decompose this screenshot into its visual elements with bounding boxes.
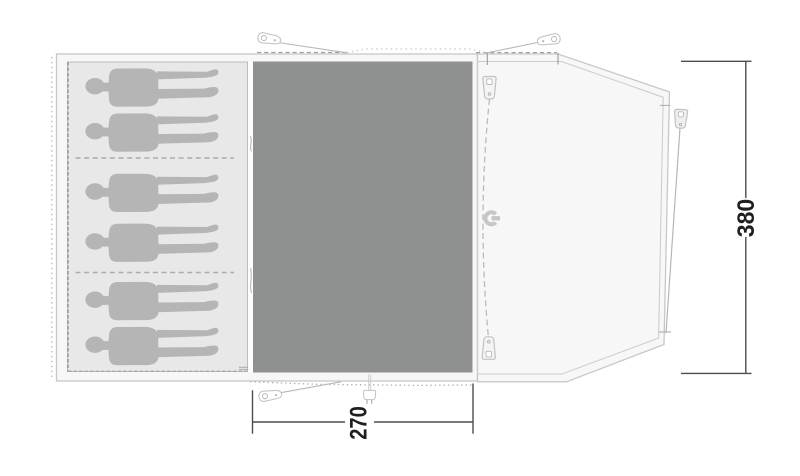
svg-text:270: 270 <box>346 406 373 440</box>
svg-text:380: 380 <box>733 199 760 238</box>
